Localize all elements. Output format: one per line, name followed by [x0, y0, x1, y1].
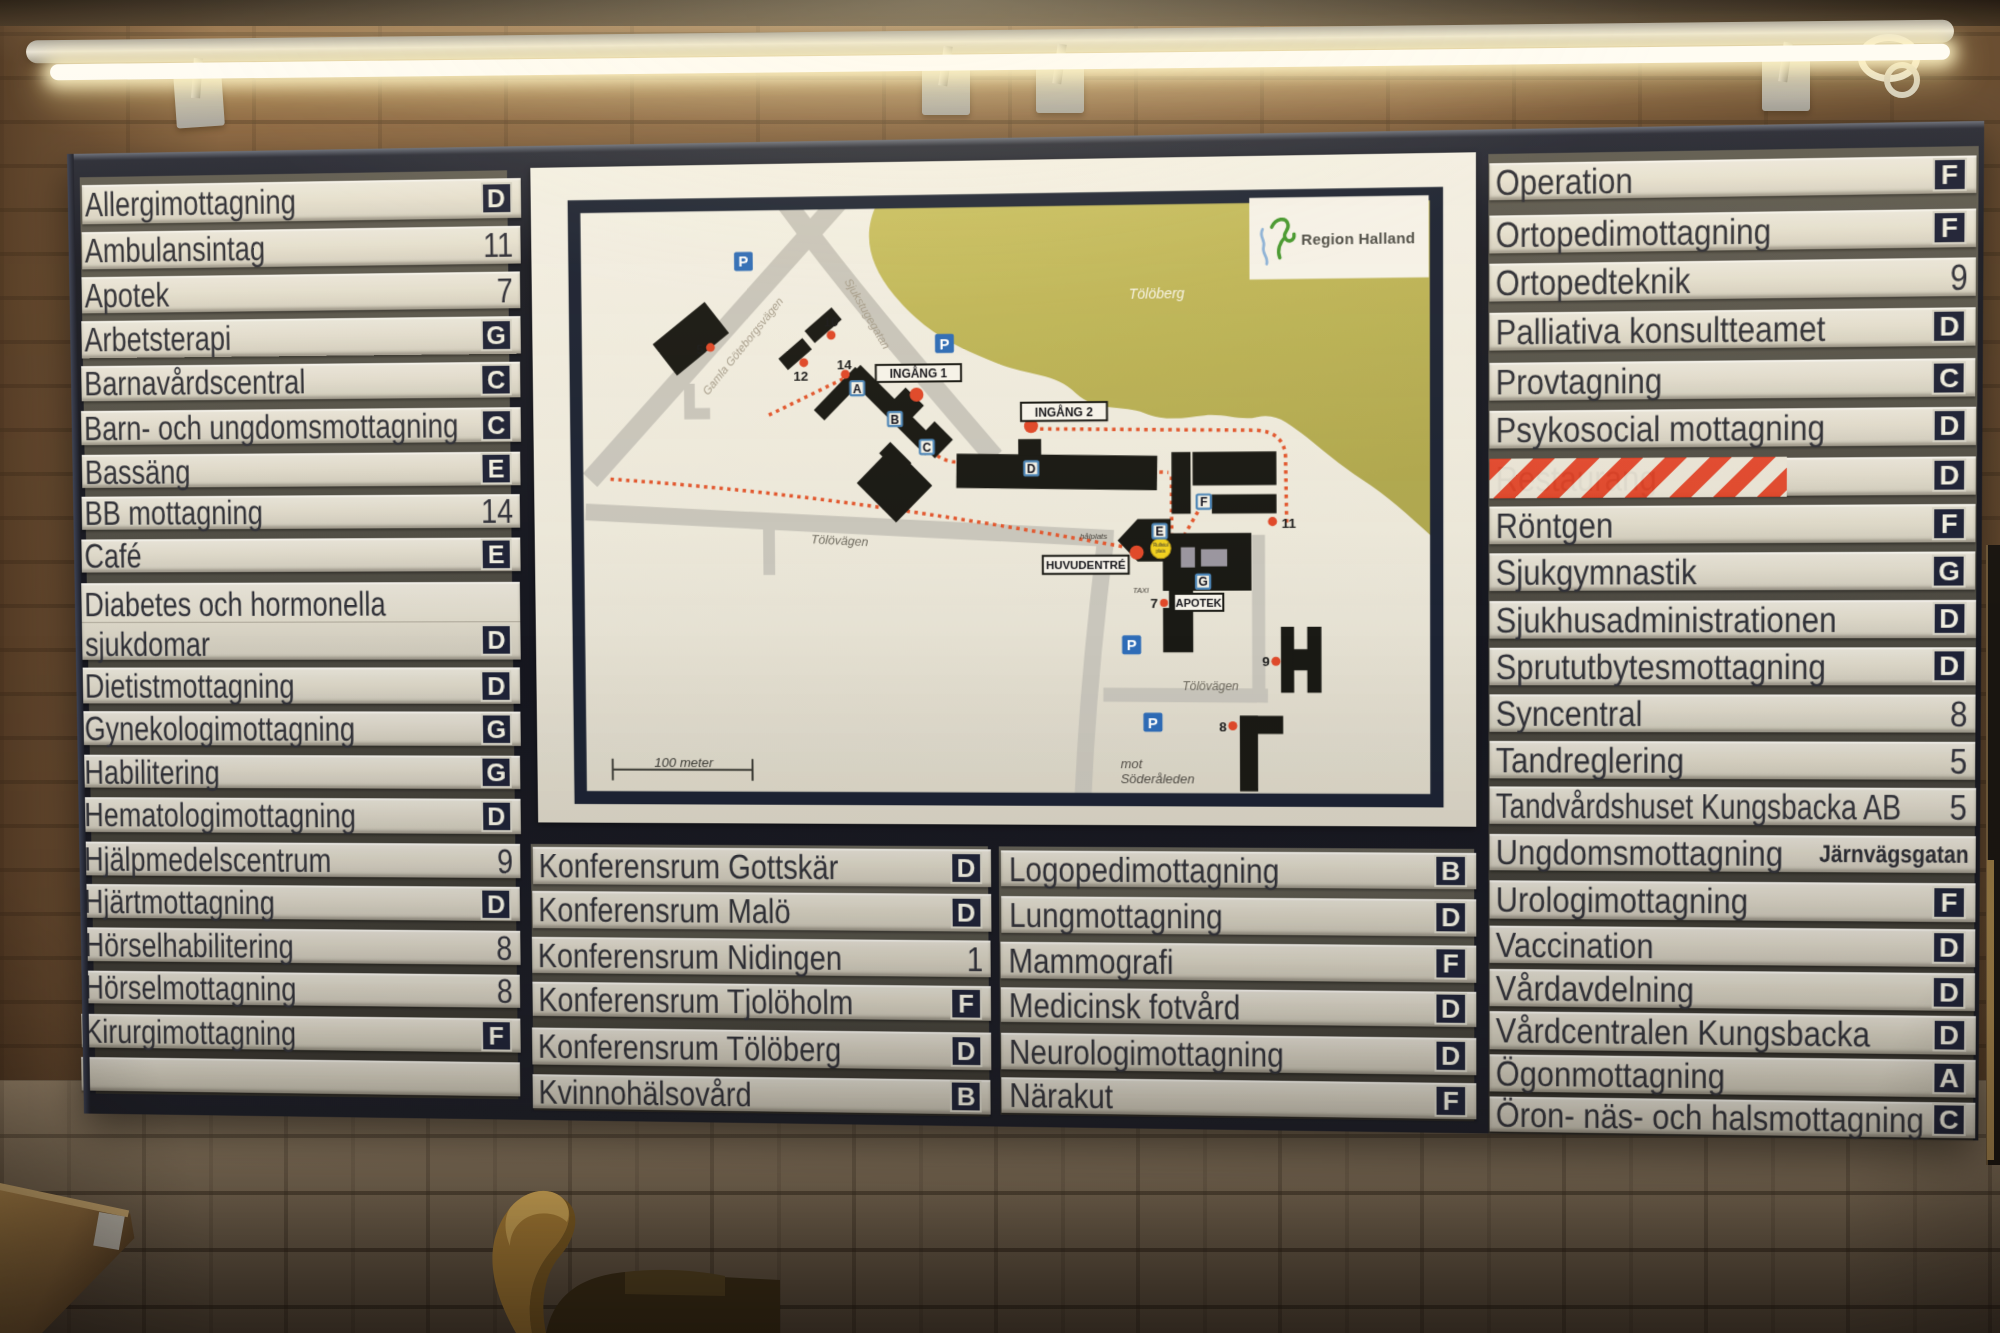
svg-text:Tölöberg: Tölöberg	[1128, 285, 1184, 302]
svg-text:10: 10	[823, 314, 838, 330]
svg-text:P: P	[939, 337, 949, 354]
svg-text:A: A	[852, 383, 861, 396]
svg-text:APOTEK: APOTEK	[1175, 597, 1221, 610]
svg-text:Söderåleden: Söderåleden	[1120, 772, 1194, 787]
svg-text:12: 12	[793, 368, 808, 384]
svg-text:P: P	[738, 254, 748, 271]
svg-text:8: 8	[1219, 718, 1227, 734]
svg-text:B: B	[890, 414, 899, 427]
svg-text:G: G	[1198, 577, 1207, 590]
svg-text:14: 14	[836, 357, 852, 373]
svg-text:P: P	[1148, 715, 1158, 732]
svg-text:INGÅNG 1: INGÅNG 1	[889, 367, 947, 381]
svg-text:plats: plats	[1156, 548, 1166, 553]
svg-text:hålplats: hålplats	[1079, 531, 1107, 541]
svg-text:TAXI: TAXI	[1132, 586, 1148, 595]
svg-text:Region Halland: Region Halland	[1301, 231, 1415, 250]
svg-text:Tölövägen: Tölövägen	[1182, 681, 1238, 694]
svg-text:100 meter: 100 meter	[654, 754, 714, 770]
svg-text:D: D	[1027, 464, 1036, 477]
svg-text:INGÅNG 2: INGÅNG 2	[1035, 405, 1093, 419]
svg-text:11: 11	[1281, 515, 1295, 531]
svg-text:C: C	[922, 442, 931, 455]
svg-text:Tölövägen: Tölövägen	[810, 532, 868, 549]
svg-text:5: 5	[696, 341, 703, 357]
svg-text:9: 9	[1262, 654, 1270, 670]
svg-text:Rullstol: Rullstol	[1153, 542, 1168, 547]
svg-text:7: 7	[1150, 595, 1158, 611]
svg-text:HUVUDENTRÉ: HUVUDENTRÉ	[1045, 559, 1125, 573]
svg-text:E: E	[1155, 526, 1163, 539]
svg-text:mot: mot	[1120, 757, 1142, 772]
svg-text:F: F	[1200, 497, 1207, 510]
svg-text:P: P	[1126, 638, 1136, 655]
